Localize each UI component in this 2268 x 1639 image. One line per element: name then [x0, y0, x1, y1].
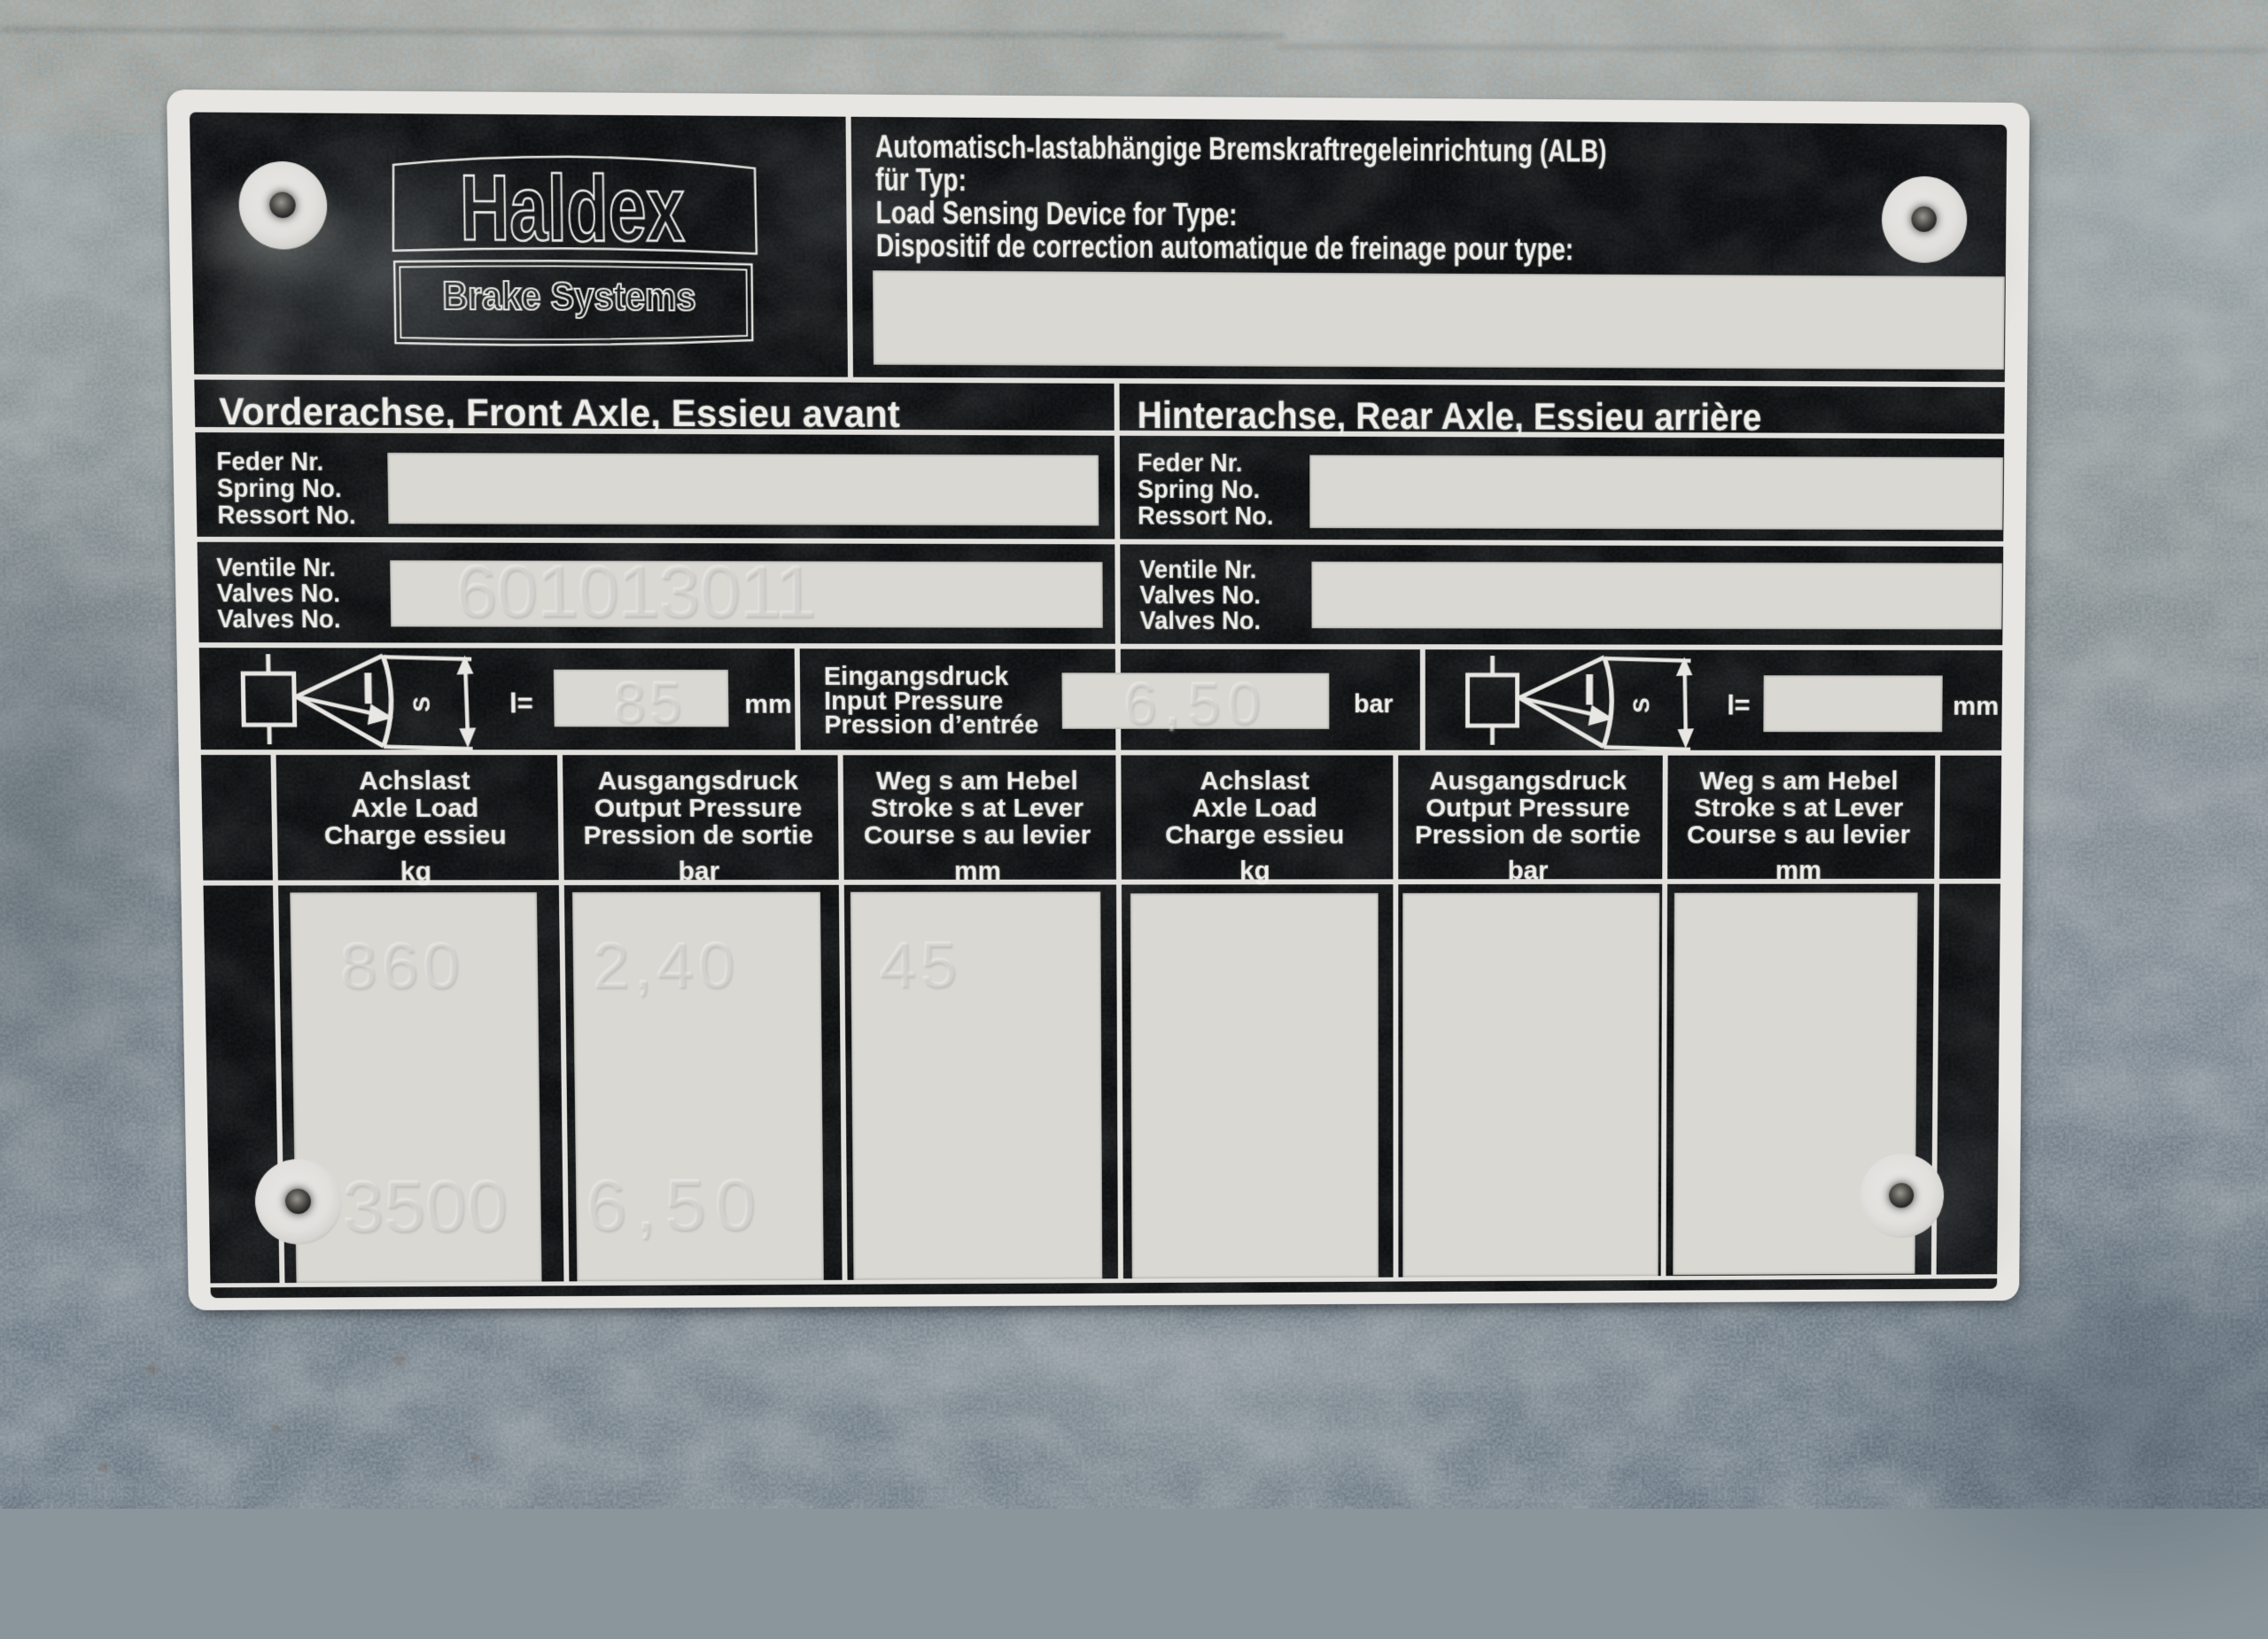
- svg-text:s: s: [403, 695, 437, 712]
